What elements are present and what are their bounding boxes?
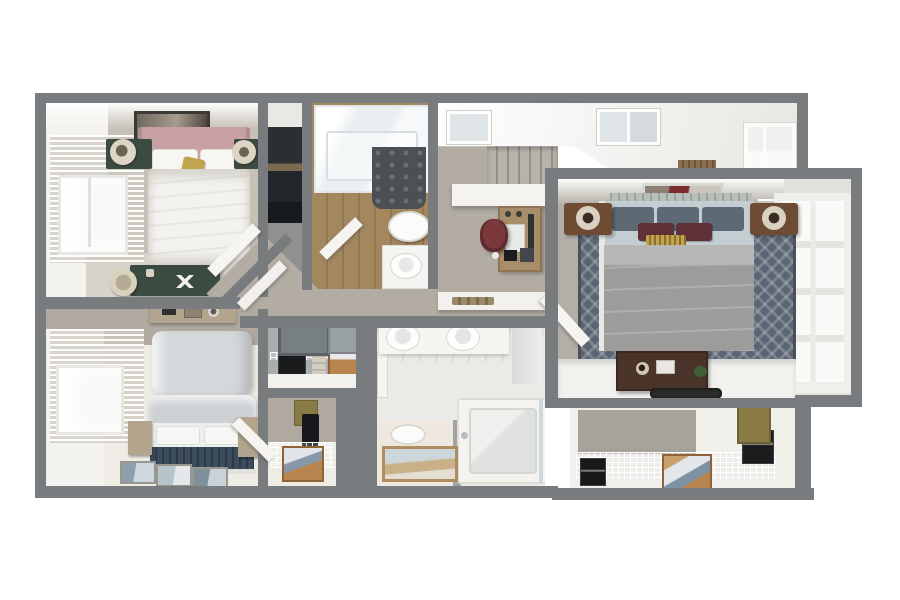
room-utility-closet bbox=[268, 398, 336, 486]
floor-mat bbox=[156, 464, 192, 486]
tub-faucet bbox=[461, 432, 468, 439]
stool bbox=[110, 269, 137, 296]
chair-caster bbox=[492, 252, 499, 259]
counter-face bbox=[268, 374, 356, 388]
desk-object-x bbox=[174, 275, 196, 288]
wall-center-horizontal bbox=[240, 316, 558, 328]
wall-bedroom1-bedroom2 bbox=[35, 297, 240, 309]
wall-bedroom2-closets bbox=[258, 309, 268, 498]
table-lamp bbox=[232, 140, 256, 164]
wall-utility-wc bbox=[336, 398, 377, 486]
window-glass bbox=[56, 365, 124, 435]
desk-item bbox=[146, 269, 154, 277]
sink-basin bbox=[446, 324, 480, 351]
room-bathroom-1 bbox=[312, 103, 428, 289]
laundry-basket bbox=[282, 446, 324, 482]
desk-knob bbox=[505, 211, 511, 217]
wall-master-top bbox=[545, 168, 862, 179]
floor-mat bbox=[120, 461, 156, 484]
floorplan-render bbox=[0, 0, 900, 600]
desk-shelf-item-black bbox=[504, 250, 517, 261]
wardrobe bbox=[268, 127, 302, 223]
sink-basin bbox=[386, 324, 420, 351]
window-glass bbox=[58, 175, 128, 255]
room-bedroom-1 bbox=[46, 103, 258, 297]
floor-mat bbox=[192, 467, 228, 486]
chest-card bbox=[656, 360, 675, 374]
wall-bathroom1-hall bbox=[428, 93, 438, 289]
office-chair bbox=[480, 219, 508, 252]
nightstand-wood bbox=[128, 421, 152, 455]
window-mullion bbox=[88, 177, 91, 247]
hall-window-mullion bbox=[763, 127, 766, 167]
bed-pillowtop-upper bbox=[152, 331, 252, 395]
closet-access-panel bbox=[737, 404, 771, 444]
wall-closet-right bbox=[795, 398, 811, 498]
back-wall-band bbox=[578, 410, 696, 454]
desk-knob bbox=[516, 211, 522, 217]
desk-shelf-item-gray bbox=[520, 248, 534, 262]
wall-closets-bathroom2 bbox=[356, 328, 377, 398]
wall-closet-top bbox=[558, 398, 795, 408]
table-lamp bbox=[576, 206, 600, 230]
shower-curtain bbox=[372, 147, 426, 209]
glass-screen bbox=[539, 398, 543, 484]
wall-niche bbox=[377, 352, 388, 398]
ledge-tray bbox=[452, 297, 494, 305]
sink-basin bbox=[390, 253, 422, 279]
bed-pillow bbox=[156, 426, 200, 445]
wc-toilet bbox=[390, 424, 426, 445]
skylight bbox=[447, 111, 491, 144]
bathtub-basin bbox=[469, 408, 537, 474]
table-lamp bbox=[762, 206, 786, 230]
wall-master-left bbox=[545, 168, 558, 408]
wall-outer-bottom-left bbox=[35, 486, 558, 498]
wall-hall-right bbox=[797, 93, 808, 179]
basket-with-clothes bbox=[662, 454, 712, 488]
wall-master-right bbox=[851, 168, 862, 407]
toilet bbox=[388, 211, 428, 242]
room-bedroom-2 bbox=[46, 309, 258, 486]
wall-outer-top bbox=[35, 93, 808, 103]
bed-duvet bbox=[604, 245, 754, 351]
chest-knob bbox=[636, 362, 649, 375]
skylight bbox=[597, 109, 660, 145]
table-lamp bbox=[110, 139, 136, 165]
wall-outer-bottom-right bbox=[552, 488, 814, 500]
wall-face bbox=[268, 103, 302, 127]
wall-outer-left bbox=[35, 93, 46, 498]
mirror-ledge bbox=[512, 322, 542, 384]
chest-plant bbox=[694, 366, 707, 377]
storage-box-black bbox=[580, 458, 606, 486]
wc-floor-mat bbox=[382, 446, 458, 482]
wall-linen-utility bbox=[268, 388, 368, 398]
wall-nook-bathroom1 bbox=[302, 93, 312, 290]
